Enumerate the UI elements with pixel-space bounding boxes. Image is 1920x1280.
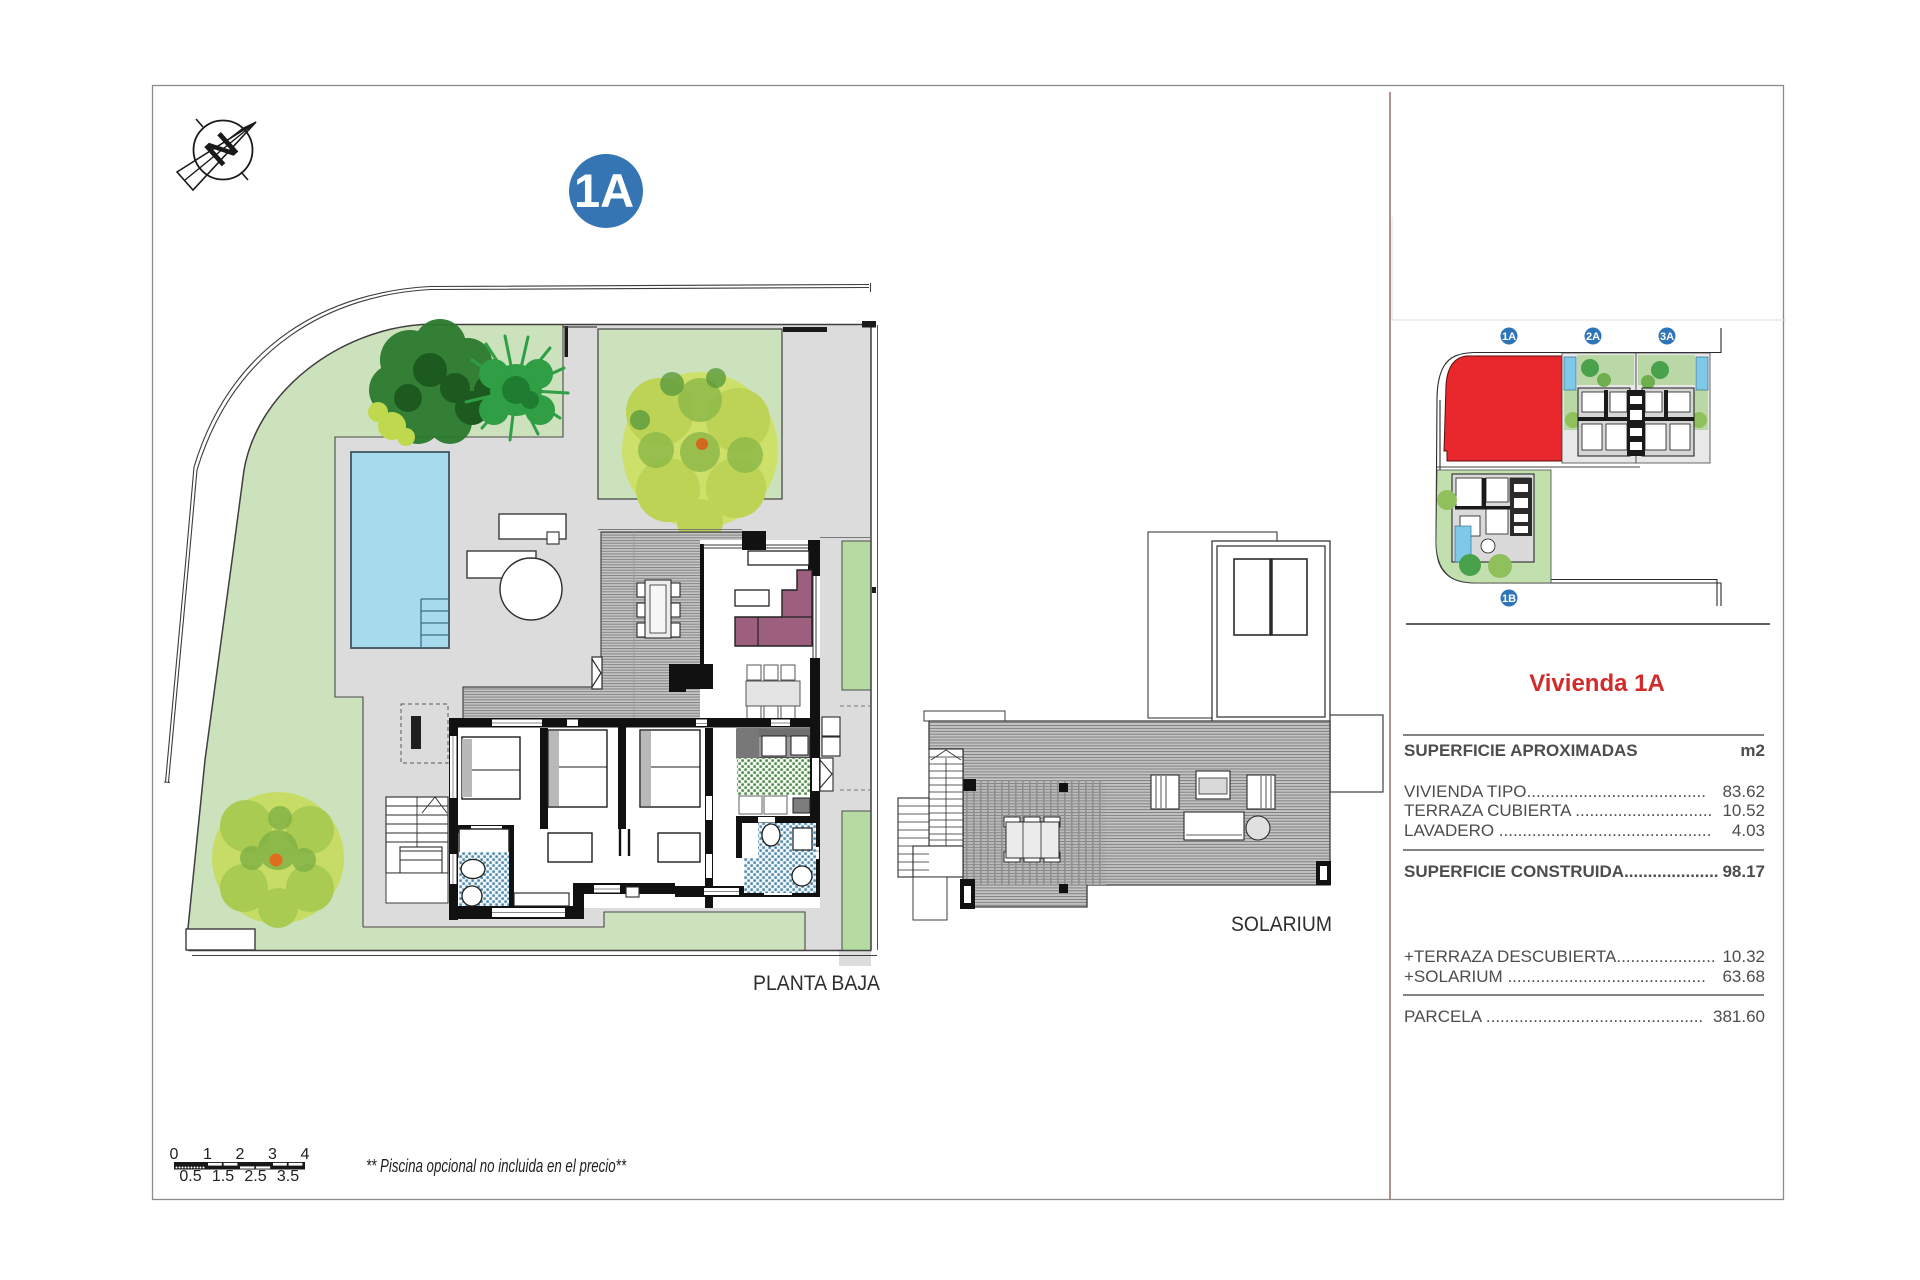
svg-text:1.5: 1.5 [212,1168,234,1185]
svg-text:2: 2 [236,1146,245,1163]
svg-text:2A: 2A [1586,331,1600,343]
svg-text:2.5: 2.5 [244,1168,266,1185]
svg-text:10.32: 10.32 [1722,947,1765,966]
svg-text:1: 1 [203,1146,212,1163]
svg-text:LAVADERO .....................: LAVADERO ...............................… [1404,821,1711,840]
svg-text:0.5: 0.5 [179,1168,201,1185]
svg-text:** Piscina opcional no incluid: ** Piscina opcional no incluida en el pr… [366,1155,627,1176]
svg-text:1B: 1B [1502,593,1516,605]
svg-text:1A: 1A [574,164,634,217]
svg-text:+SOLARIUM ....................: +SOLARIUM ..............................… [1404,967,1706,986]
svg-text:1A: 1A [1502,331,1516,343]
svg-text:381.60: 381.60 [1713,1007,1765,1026]
svg-text:0: 0 [170,1146,179,1163]
svg-text:SUPERFICIE CONSTRUIDA.........: SUPERFICIE CONSTRUIDA...................… [1404,862,1719,881]
svg-text:3: 3 [268,1146,277,1163]
svg-text:+TERRAZA DESCUBIERTA..........: +TERRAZA DESCUBIERTA....................… [1404,947,1716,966]
svg-text:83.62: 83.62 [1722,782,1765,801]
svg-text:98.17: 98.17 [1722,862,1765,881]
svg-text:4.03: 4.03 [1732,821,1765,840]
svg-text:10.52: 10.52 [1722,801,1765,820]
svg-text:SUPERFICIE APROXIMADAS: SUPERFICIE APROXIMADAS [1404,741,1638,760]
svg-text:PARCELA ......................: PARCELA ................................… [1404,1007,1703,1026]
svg-text:TERRAZA CUBIERTA .............: TERRAZA CUBIERTA .......................… [1404,801,1712,820]
svg-text:63.68: 63.68 [1722,967,1765,986]
svg-text:VIVIENDA TIPO.................: VIVIENDA TIPO...........................… [1404,782,1706,801]
svg-text:PLANTA BAJA: PLANTA BAJA [753,972,880,995]
svg-text:m2: m2 [1740,741,1765,760]
svg-text:3.5: 3.5 [277,1168,299,1185]
svg-text:4: 4 [301,1146,310,1163]
svg-text:Vivienda 1A: Vivienda 1A [1529,670,1665,697]
svg-text:SOLARIUM: SOLARIUM [1231,913,1332,936]
svg-text:3A: 3A [1660,331,1674,343]
